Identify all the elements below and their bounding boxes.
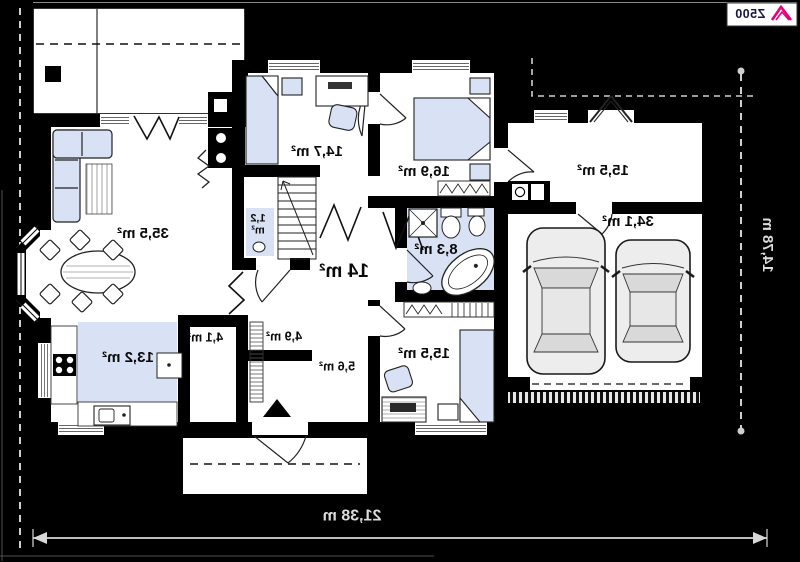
nightstand-icon (282, 78, 302, 95)
stove-icon (53, 354, 76, 376)
pantry-shelf-icon (250, 322, 263, 402)
desk-icon (382, 397, 426, 422)
room-area-label-vestibule: 5,6 m² (319, 360, 355, 373)
wardrobe-icon (404, 302, 494, 317)
room-area-label-wc: 1,2 m² (243, 213, 273, 236)
car-icon (612, 240, 694, 362)
wardrobe-icon (438, 181, 490, 196)
terrace-column (45, 66, 61, 82)
nightstand-icon (470, 78, 490, 94)
garage-threshold (508, 392, 700, 403)
fireplace-unit (208, 92, 234, 168)
island-icon (157, 353, 182, 378)
room-area-label-utility-room: 15,5 m² (577, 163, 629, 179)
floor-plan-drawing (0, 0, 800, 562)
room-area-label-garage: 34,1 m² (602, 214, 654, 230)
sink-icon (94, 406, 130, 425)
room-area-label-bedroom-right: 16,9 m² (398, 164, 450, 180)
room-area-label-living-room: 35,5 m² (117, 226, 169, 242)
wc-sink-icon (253, 242, 265, 252)
bidet-icon (468, 208, 485, 236)
porch (182, 437, 368, 495)
washing-machine-icon (508, 181, 550, 202)
rug (86, 164, 112, 214)
logo-text: Z500 (735, 7, 766, 21)
basin-icon (413, 282, 431, 294)
room-area-label-bathroom: 8,3 m² (414, 242, 457, 258)
room-area-label-hallway: 14 m² (319, 262, 369, 282)
height-dimension-label: 14,78 m (759, 217, 775, 272)
width-dimension-label: 21,38 m (323, 509, 382, 526)
shower-icon (409, 209, 437, 237)
car-icon (523, 228, 609, 374)
chair-icon (328, 104, 358, 132)
room-area-label-kitchen: 13,2 m² (102, 350, 154, 366)
floor-plan-page: 35,5 m² 14,7 m² 1,2 m² 14 m² 16,9 m² 8,3… (0, 0, 800, 562)
desk-icon (316, 76, 368, 106)
toilet-icon (441, 208, 461, 238)
room-area-label-hall: 4,9 m² (266, 330, 302, 343)
side-table-icon (438, 404, 458, 420)
room-area-label-bedroom-top: 14,7 m² (291, 144, 343, 160)
room-area-label-pantry: 4,1 m² (187, 331, 223, 344)
room-area-label-bedroom-bottom: 15,5 m² (398, 346, 450, 362)
nightstand-icon (470, 164, 490, 180)
